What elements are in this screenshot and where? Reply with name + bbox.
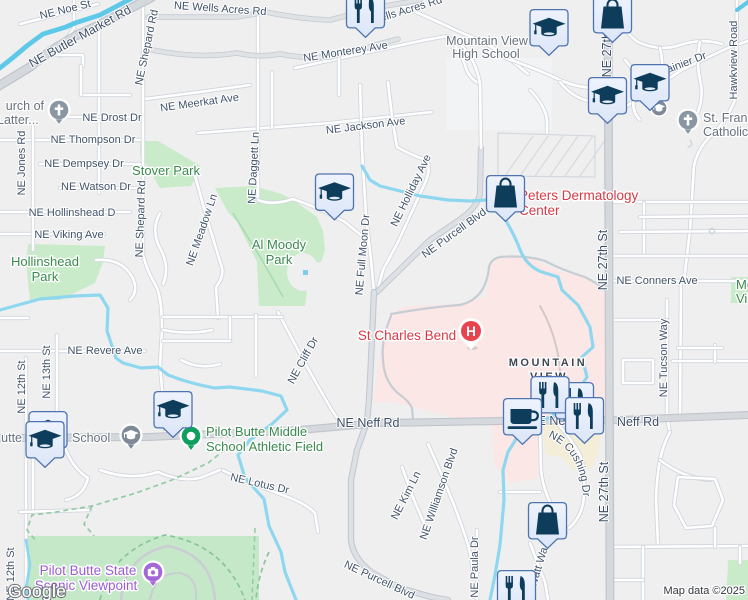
svg-text:Pilot Butte State: Pilot Butte State: [40, 563, 137, 578]
svg-text:St Charles Bend: St Charles Bend: [358, 328, 456, 343]
svg-text:Stover Park: Stover Park: [132, 163, 200, 178]
svg-text:School: School: [72, 431, 110, 445]
svg-text:NE Revere Ave: NE Revere Ave: [67, 345, 142, 357]
svg-text:Mountain View: Mountain View: [446, 34, 529, 48]
svg-text:Hawkview Road: Hawkview Road: [728, 21, 740, 100]
svg-text:NE Tucson Way: NE Tucson Way: [658, 318, 670, 397]
svg-text:Hollinshead: Hollinshead: [11, 254, 79, 269]
svg-text:Moun: Moun: [736, 277, 748, 292]
svg-text:NE 13th St: NE 13th St: [41, 345, 53, 398]
svg-text:NE 27th St: NE 27th St: [596, 229, 610, 290]
svg-text:NE Jones Rd: NE Jones Rd: [16, 131, 28, 196]
svg-text:Park: Park: [266, 252, 293, 267]
svg-text:Map data ©2025: Map data ©2025: [664, 585, 746, 597]
svg-text:MOUNTAIN: MOUNTAIN: [509, 357, 587, 369]
svg-text:urch of: urch of: [6, 99, 45, 113]
svg-text:NE Watson Dr: NE Watson Dr: [61, 181, 131, 193]
svg-text:NE Thompson Dr: NE Thompson Dr: [51, 134, 136, 146]
svg-text:Latter...: Latter...: [0, 113, 39, 127]
svg-text:Catholic: Catholic: [703, 125, 748, 139]
svg-text:Center: Center: [519, 203, 560, 218]
svg-text:Al Moody: Al Moody: [252, 237, 307, 252]
svg-text:utte: utte: [1, 431, 22, 445]
svg-text:NE 12th St: NE 12th St: [16, 360, 28, 413]
svg-text:NE Viking Ave: NE Viking Ave: [34, 229, 103, 241]
svg-text:Google: Google: [8, 581, 66, 600]
svg-text:NE Dempsey Dr: NE Dempsey Dr: [44, 158, 124, 170]
svg-text:School Athletic Field: School Athletic Field: [206, 439, 323, 454]
svg-text:Park: Park: [32, 269, 59, 284]
svg-text:St. Francis: St. Francis: [703, 111, 748, 125]
svg-text:NE Neff Rd: NE Neff Rd: [337, 416, 400, 430]
svg-text:NE Drost Dr: NE Drost Dr: [82, 112, 142, 124]
svg-text:H: H: [466, 324, 476, 339]
svg-text:NE Conners Ave: NE Conners Ave: [616, 275, 697, 287]
svg-text:Neff Rd: Neff Rd: [617, 415, 659, 429]
svg-text:High School: High School: [452, 47, 519, 61]
svg-text:NE Paula Dr: NE Paula Dr: [469, 536, 481, 597]
svg-text:NE 27th St: NE 27th St: [597, 461, 611, 522]
svg-text:Peters Dermatology: Peters Dermatology: [519, 188, 639, 203]
svg-text:Pilot Butte Middle: Pilot Butte Middle: [206, 424, 307, 439]
svg-text:Vie: Vie: [736, 291, 748, 306]
svg-text:NE Hollinshead D: NE Hollinshead D: [29, 207, 116, 219]
